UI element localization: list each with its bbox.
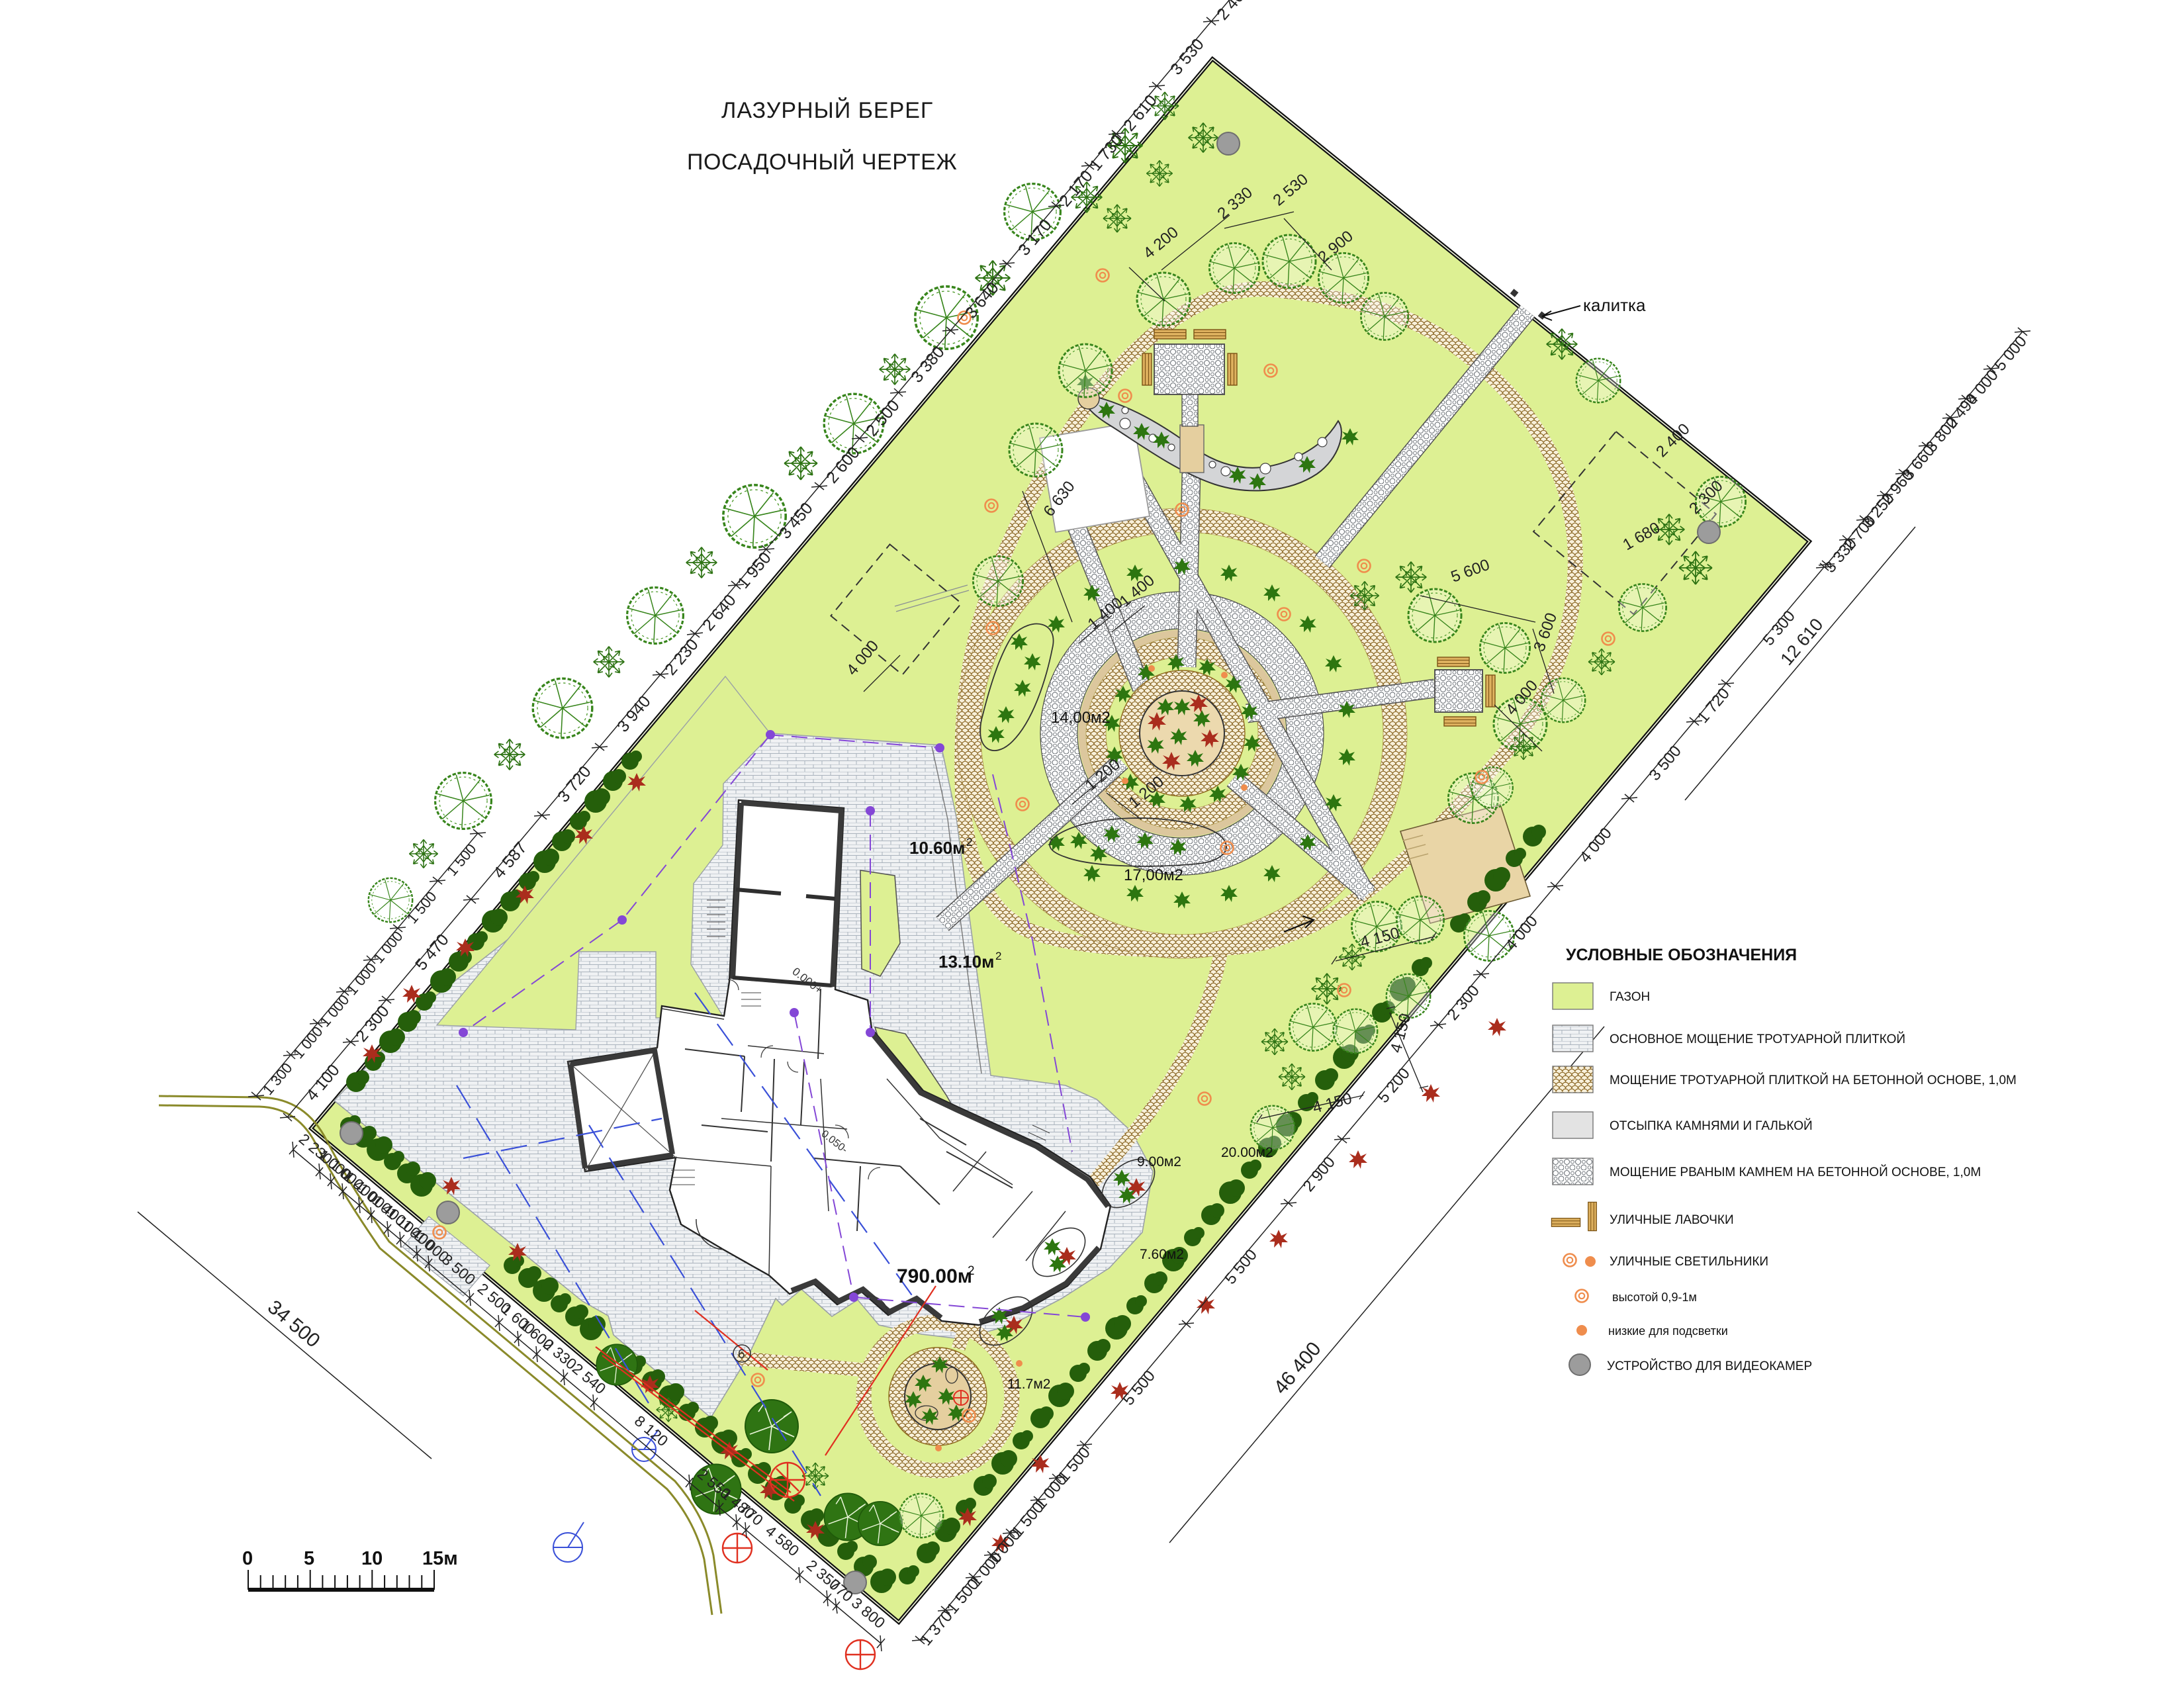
svg-text:1 300: 1 300 — [259, 1060, 296, 1098]
svg-text:1 000: 1 000 — [370, 928, 406, 966]
svg-text:5 200: 5 200 — [1375, 1065, 1414, 1107]
svg-text:МОЩЕНИЕ ТРОТУАРНОЙ ПЛИТКОЙ НА: МОЩЕНИЕ ТРОТУАРНОЙ ПЛИТКОЙ НА БЕТОННОЙ О… — [1610, 1073, 2017, 1087]
svg-text:11.7м2: 11.7м2 — [1007, 1377, 1050, 1392]
svg-text:6: 6 — [738, 1348, 745, 1361]
svg-text:ПОСАДОЧНЫЙ ЧЕРТЕЖ: ПОСАДОЧНЫЙ ЧЕРТЕЖ — [687, 150, 957, 175]
svg-text:ОСНОВНОЕ МОЩЕНИЕ ТРОТУАРНОЙ ПЛ: ОСНОВНОЕ МОЩЕНИЕ ТРОТУАРНОЙ ПЛИТКОЙ — [1610, 1032, 1905, 1046]
svg-text:790.00м: 790.00м — [897, 1265, 972, 1287]
svg-text:17,00м2: 17,00м2 — [1124, 866, 1183, 884]
svg-text:3 500: 3 500 — [1646, 743, 1685, 784]
svg-text:2 400: 2 400 — [1213, 0, 1254, 24]
svg-text:1 000: 1 000 — [343, 960, 380, 998]
svg-text:1 370: 1 370 — [917, 1608, 956, 1649]
svg-text:низкие для подсветки: низкие для подсветки — [1608, 1324, 1728, 1338]
svg-text:2: 2 — [966, 836, 972, 848]
svg-text:4 000: 4 000 — [1576, 825, 1615, 866]
svg-text:2 900: 2 900 — [1300, 1154, 1339, 1195]
svg-text:0: 0 — [242, 1548, 253, 1569]
svg-text:5 000: 5 000 — [1991, 333, 2030, 375]
svg-text:9.00м2: 9.00м2 — [1137, 1154, 1181, 1169]
svg-text:ОТСЫПКА КАМНЯМИ И ГАЛЬКОЙ: ОТСЫПКА КАМНЯМИ И ГАЛЬКОЙ — [1610, 1119, 1813, 1133]
svg-text:14,00м2: 14,00м2 — [1051, 709, 1111, 727]
svg-text:МОЩЕНИЕ РВАНЫМ КАМНЕМ НА БЕТОН: МОЩЕНИЕ РВАНЫМ КАМНЕМ НА БЕТОННОЙ ОСНОВЕ… — [1610, 1165, 1981, 1179]
svg-text:УЛИЧНЫЕ СВЕТИЛЬНИКИ: УЛИЧНЫЕ СВЕТИЛЬНИКИ — [1610, 1255, 1768, 1269]
svg-text:10: 10 — [361, 1548, 383, 1569]
svg-text:калитка: калитка — [1583, 295, 1646, 315]
svg-text:15м: 15м — [422, 1548, 458, 1569]
svg-text:высотой 0,9-1м: высотой 0,9-1м — [1612, 1291, 1697, 1304]
svg-text:1 000: 1 000 — [316, 991, 353, 1030]
svg-text:2: 2 — [968, 1264, 975, 1278]
svg-text:УСЛОВНЫЕ ОБОЗНАЧЕНИЯ: УСЛОВНЫЕ ОБОЗНАЧЕНИЯ — [1566, 946, 1797, 964]
svg-text:2 300: 2 300 — [1444, 982, 1483, 1024]
svg-text:УЛИЧНЫЕ ЛАВОЧКИ: УЛИЧНЫЕ ЛАВОЧКИ — [1610, 1213, 1734, 1227]
svg-text:1 500: 1 500 — [443, 841, 480, 879]
svg-text:1 000: 1 000 — [290, 1023, 326, 1062]
svg-text:УСТРОЙСТВО ДЛЯ ВИДЕОКАМЕР: УСТРОЙСТВО ДЛЯ ВИДЕОКАМЕР — [1607, 1359, 1812, 1373]
svg-text:20.00м2: 20.00м2 — [1221, 1145, 1273, 1160]
svg-text:ГАЗОН: ГАЗОН — [1610, 990, 1650, 1004]
svg-text:5 500: 5 500 — [1222, 1246, 1261, 1288]
svg-text:5: 5 — [304, 1548, 314, 1569]
svg-text:ЛАЗУРНЫЙ БЕРЕГ: ЛАЗУРНЫЙ БЕРЕГ — [721, 98, 933, 123]
svg-text:10.60м: 10.60м — [909, 838, 965, 858]
svg-text:13.10м: 13.10м — [938, 952, 994, 972]
svg-text:1 720: 1 720 — [1694, 685, 1733, 727]
svg-text:2: 2 — [995, 950, 1001, 962]
svg-text:7.60м2: 7.60м2 — [1140, 1247, 1184, 1262]
